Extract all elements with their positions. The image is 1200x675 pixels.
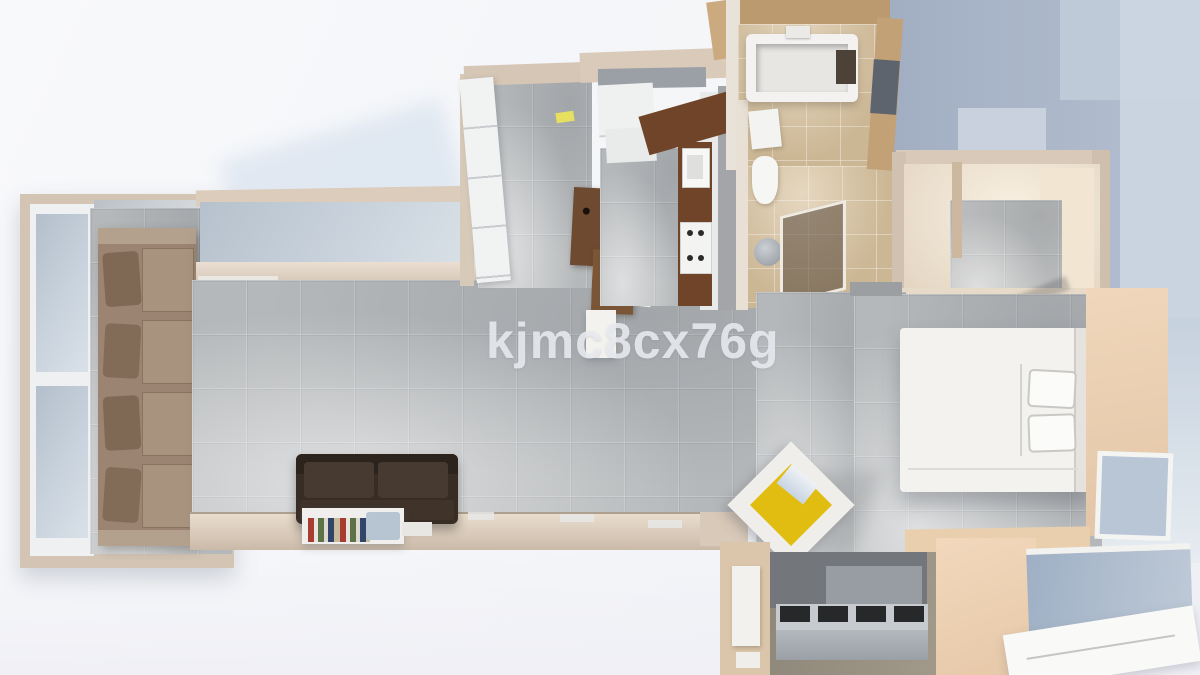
bay-window-glass-upper [36,214,88,372]
book-sideboard [302,508,404,544]
window-band-glass [200,202,482,264]
sofa-seat-1 [142,248,194,312]
door-handle-line [1027,634,1175,659]
sofa-seat-3 [142,392,194,456]
bay-window-glass-lower [36,386,88,538]
bath-faucet [786,26,810,38]
washbasin [754,238,782,266]
sofa-seat-2 [142,320,194,384]
kitchen-sink [682,148,710,188]
sectional-sofa [98,228,196,546]
kitchen-floor [600,148,690,306]
leather-sofa-cushion-left [304,462,374,498]
stove [680,222,712,274]
duvet-foot-line [908,468,1078,470]
threshold-mark-1 [560,514,594,522]
shower-glass [780,200,846,306]
sofa-seat-4 [142,464,194,528]
burner-3 [687,255,693,261]
hall-wall-stub [850,282,902,296]
bathtub-caddy [836,50,856,84]
double-bed [900,328,1092,492]
closet-divider [952,162,962,258]
toilet-bowl [752,156,778,204]
burner-1 [687,230,693,236]
sofa-armrest-top [98,228,196,244]
toilet-cistern [748,109,782,150]
side-tray [402,522,432,536]
bed-pillow-1 [1027,369,1077,409]
threshold-mark-3 [468,512,494,520]
balcony-door [732,566,760,646]
background-right-strip [1120,0,1200,318]
bench-front [776,630,928,660]
sofa-pillow-1 [102,251,142,307]
door-mat [736,652,760,668]
balcony-wall-panel [826,566,922,604]
sofa-pillow-4 [102,467,142,523]
sofa-pillow-2 [103,323,142,379]
duvet-fold-line [1020,364,1022,456]
sofa-armrest-bottom [98,530,196,546]
book-row [308,518,370,542]
bedroom-window [1094,451,1173,542]
threshold-mark-2 [648,520,682,528]
watermark-text: kjmc8cx76g [486,312,780,370]
leather-sofa-cushion-right [378,462,448,498]
bathroom-divider-wall [736,100,748,310]
floor-plan-render: kjmc8cx76g [0,0,1200,675]
storage-bench [776,604,928,660]
sink-basin [687,155,703,179]
background-light-rect [958,108,1046,156]
bathroom-mirror [870,59,900,115]
bathtub-basin [756,44,848,92]
bathtub [746,34,858,102]
storage-box [366,512,400,540]
burner-4 [698,255,704,261]
bed-pillow-2 [1027,413,1076,453]
burner-2 [698,230,704,236]
sofa-pillow-3 [103,395,142,451]
bar-knob [583,207,590,214]
bench-slots [780,606,924,622]
